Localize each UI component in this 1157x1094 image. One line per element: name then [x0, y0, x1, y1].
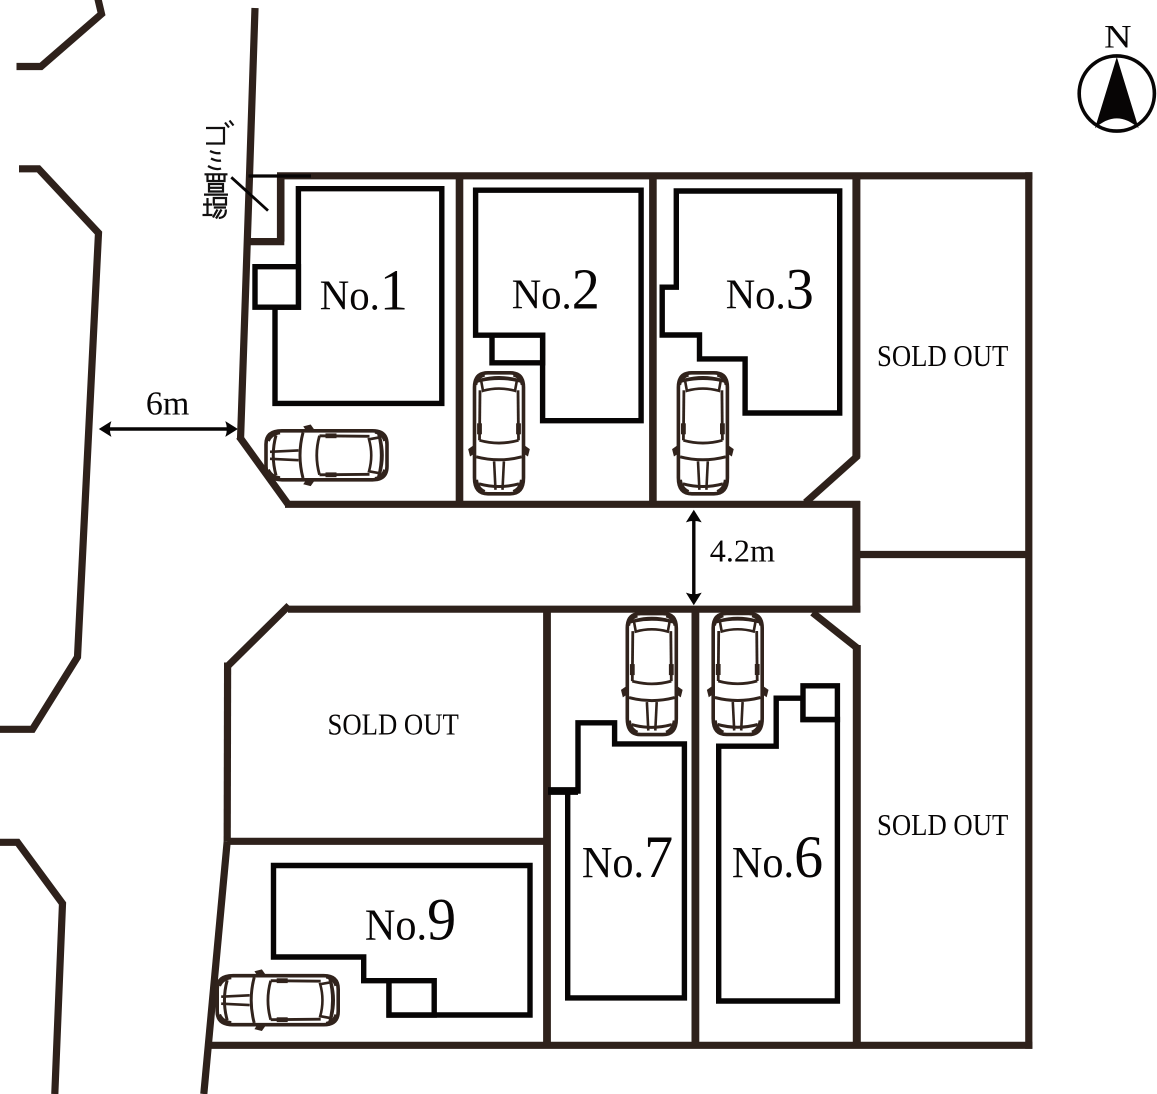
svg-text:No.: No. [732, 839, 794, 887]
svg-text:No.: No. [726, 272, 786, 319]
svg-text:4.2m: 4.2m [710, 533, 775, 569]
svg-text:9: 9 [427, 885, 456, 952]
svg-text:2: 2 [572, 257, 600, 321]
svg-text:SOLD OUT: SOLD OUT [877, 808, 1009, 842]
svg-text:6m: 6m [146, 386, 189, 423]
svg-text:SOLD OUT: SOLD OUT [328, 708, 460, 742]
svg-text:1: 1 [380, 258, 408, 322]
svg-text:No.: No. [320, 273, 380, 320]
svg-text:No.: No. [582, 839, 644, 887]
svg-text:N: N [1104, 18, 1131, 55]
svg-text:7: 7 [644, 823, 673, 890]
svg-text:No.: No. [365, 902, 427, 950]
svg-text:No.: No. [512, 272, 572, 319]
svg-text:6: 6 [794, 823, 823, 890]
svg-text:3: 3 [786, 257, 814, 321]
svg-text:SOLD OUT: SOLD OUT [877, 339, 1009, 373]
